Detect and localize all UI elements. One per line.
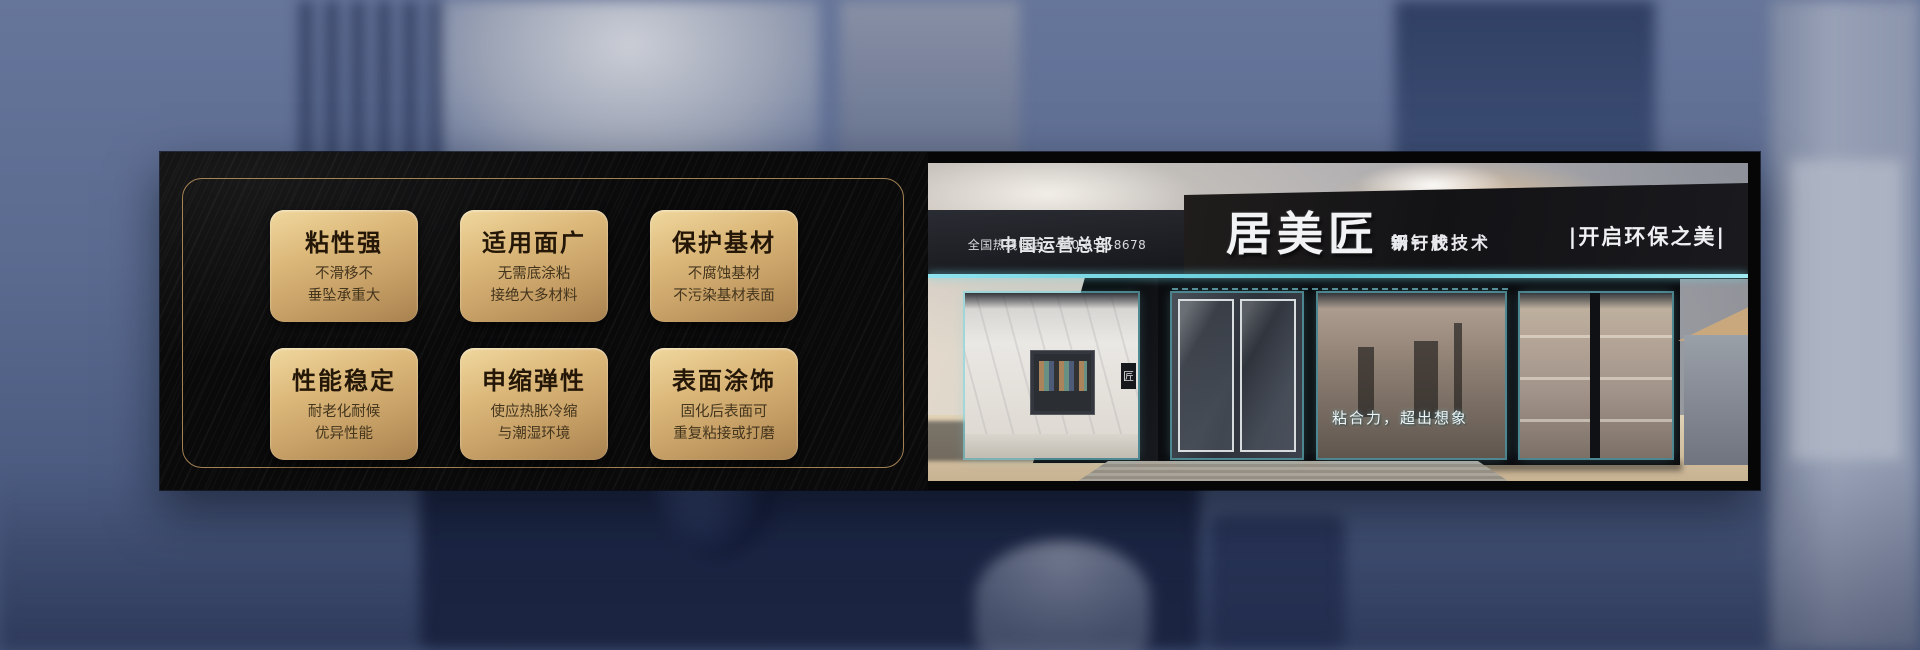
feature-title: 性能稳定 <box>270 361 418 396</box>
window-counter <box>965 434 1138 458</box>
product-line: 新一代技术 <box>1391 233 1491 256</box>
feature-desc-line: 使应热胀冷缩 <box>460 402 608 424</box>
feature-card: 保护基材 不腐蚀基材 不污染基材表面 <box>650 210 798 322</box>
page-background: 粘性强 不滑移不 垂坠承重大 适用面广 无需底涂粘 接绝大多材料 保护基材 <box>0 0 1920 650</box>
feature-desc: 不腐蚀基材 不污染基材表面 <box>650 264 798 308</box>
features-panel: 粘性强 不滑移不 垂坠承重大 适用面广 无需底涂粘 接绝大多材料 保护基材 <box>160 152 928 490</box>
storefront-photo: 中国运营总部 全国热线电话：400-656-8678 居美匠 钢钉胶 新一代技术… <box>928 163 1748 481</box>
window-slogan: 粘合力，超出想象 <box>1332 407 1468 428</box>
feature-card: 申缩弹性 使应热胀冷缩 与潮湿环境 <box>460 348 608 460</box>
display-shelf-items <box>1039 361 1087 391</box>
feature-desc-line: 无需底涂粘 <box>460 264 608 286</box>
door-pane <box>1178 299 1234 452</box>
neon-dashes <box>1172 288 1508 290</box>
feature-desc: 无需底涂粘 接绝大多材料 <box>460 264 608 308</box>
neon-strip <box>928 274 1748 278</box>
feature-desc: 使应热胀冷缩 与潮湿环境 <box>460 402 608 446</box>
plaque-glyph: 匠 <box>1121 363 1136 389</box>
feature-desc-line: 垂坠承重大 <box>270 286 418 308</box>
adjacent-roof <box>1678 293 1748 341</box>
bg-pillar <box>840 0 1020 165</box>
hotline-number: 全国热线电话：400-656-8678 <box>968 236 1147 253</box>
feature-desc-line: 不污染基材表面 <box>650 286 798 308</box>
door-pane <box>1240 299 1296 452</box>
feature-desc: 耐老化耐候 优异性能 <box>270 402 418 446</box>
paving-walkway <box>1078 461 1508 481</box>
window-showroom: 粘合力，超出想象 <box>1318 293 1505 458</box>
bg-floor-shadow <box>0 470 1920 650</box>
feature-desc-line: 与潮湿环境 <box>460 424 608 446</box>
feature-desc: 固化后表面可 重复粘接或打磨 <box>650 402 798 446</box>
feature-card: 粘性强 不滑移不 垂坠承重大 <box>270 210 418 322</box>
feature-title: 保护基材 <box>650 223 798 258</box>
window-ceiling-shade <box>965 293 1138 309</box>
interior-silhouette <box>1454 323 1462 419</box>
feature-desc-line: 不滑移不 <box>270 264 418 286</box>
feature-card: 表面涂饰 固化后表面可 重复粘接或打磨 <box>650 348 798 460</box>
feature-desc-line: 重复粘接或打磨 <box>650 424 798 446</box>
feature-title: 粘性强 <box>270 223 418 258</box>
entrance-door <box>1172 293 1302 458</box>
eco-slogan: |开启环保之美| <box>1569 221 1726 251</box>
hq-sign: 中国运营总部 全国热线电话：400-656-8678 <box>928 210 1186 276</box>
brand-name: 居美匠 <box>1226 198 1379 264</box>
feature-title: 申缩弹性 <box>460 361 608 396</box>
display-board <box>1030 350 1095 415</box>
feature-desc-line: 优异性能 <box>270 424 418 446</box>
window-ceiling-shade <box>1318 293 1505 309</box>
bg-right-panel <box>1790 160 1902 460</box>
adjacent-wall <box>1684 335 1748 465</box>
feature-card-grid: 粘性强 不滑移不 垂坠承重大 适用面广 无需底涂粘 接绝大多材料 保护基材 <box>270 210 798 460</box>
window-mullion <box>1590 293 1600 458</box>
feature-desc-line: 耐老化耐候 <box>270 402 418 424</box>
feature-desc-line: 固化后表面可 <box>650 402 798 424</box>
feature-desc: 不滑移不 垂坠承重大 <box>270 264 418 308</box>
promo-banner: 粘性强 不滑移不 垂坠承重大 适用面广 无需底涂粘 接绝大多材料 保护基材 <box>160 152 1760 490</box>
feature-card: 性能稳定 耐老化耐候 优异性能 <box>270 348 418 460</box>
feature-title: 适用面广 <box>460 223 608 258</box>
feature-desc-line: 接绝大多材料 <box>460 286 608 308</box>
window-shelves <box>1520 293 1672 458</box>
window-marble: 匠 <box>965 293 1138 458</box>
main-signboard: 居美匠 钢钉胶 新一代技术 |开启环保之美| <box>1184 183 1748 279</box>
feature-desc-line: 不腐蚀基材 <box>650 264 798 286</box>
feature-card: 适用面广 无需底涂粘 接绝大多材料 <box>460 210 608 322</box>
feature-title: 表面涂饰 <box>650 361 798 396</box>
